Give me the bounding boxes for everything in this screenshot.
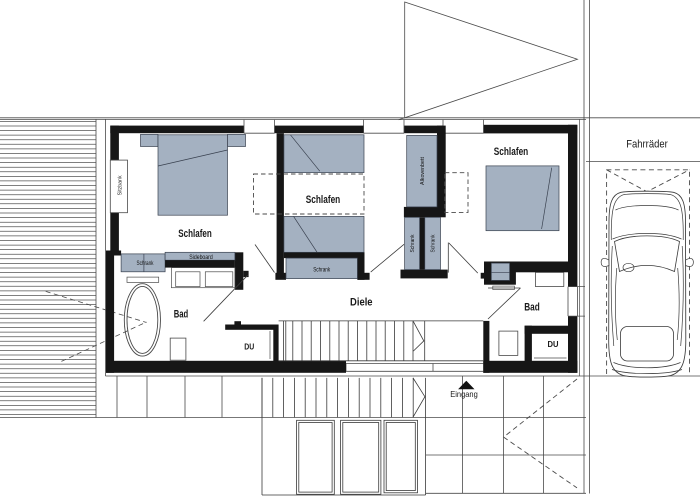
svg-text:Sideboard: Sideboard — [189, 255, 213, 261]
svg-text:Eingang: Eingang — [450, 389, 478, 399]
svg-text:DU: DU — [548, 339, 559, 349]
svg-text:Sitzbank: Sitzbank — [118, 175, 124, 195]
svg-text:Schlafen: Schlafen — [306, 194, 341, 206]
svg-text:Fahrräder: Fahrräder — [626, 139, 668, 151]
svg-text:DU: DU — [244, 342, 254, 352]
svg-text:Schrank: Schrank — [410, 234, 416, 252]
svg-text:Schlafen: Schlafen — [494, 146, 529, 158]
svg-text:Schrank: Schrank — [137, 261, 155, 267]
svg-text:Alkovenbett: Alkovenbett — [420, 157, 426, 185]
svg-text:Schlafen: Schlafen — [178, 228, 212, 240]
svg-text:Schrank: Schrank — [313, 268, 331, 274]
svg-text:Schrank: Schrank — [431, 234, 437, 252]
svg-text:Diele: Diele — [350, 296, 373, 308]
svg-text:Bad: Bad — [174, 308, 189, 320]
svg-text:Bad: Bad — [524, 301, 540, 313]
